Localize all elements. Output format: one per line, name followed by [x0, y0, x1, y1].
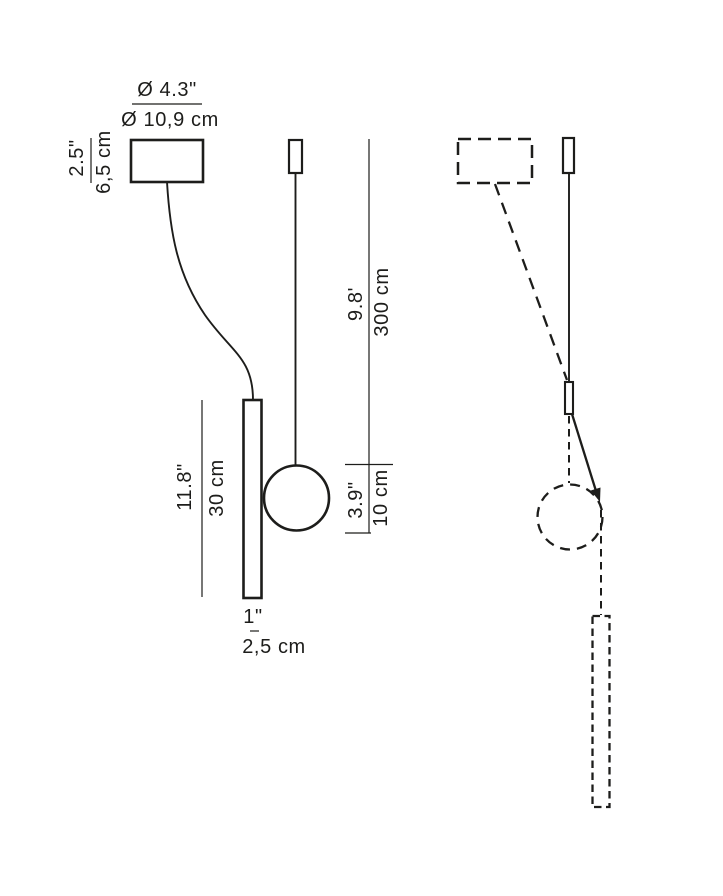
ceiling-attachment-outline-side [563, 138, 574, 173]
canopy-diameter-inches-label: Ø 4.3" [137, 80, 197, 100]
sphere-diameter-inches-label: 3.9" [346, 481, 366, 518]
tube-outline-dashed [593, 616, 610, 807]
front-view [131, 140, 329, 598]
sphere-diameter-cm-label: 10 cm [371, 469, 391, 526]
canopy-height-cm-label: 6,5 cm [94, 130, 114, 194]
canopy-diameter-cm-label: Ø 10,9 cm [121, 110, 219, 130]
canopy-outline-dashed [458, 139, 532, 183]
tilt-arrow-shaft [572, 414, 596, 491]
tube-length-inches-label: 11.8" [175, 463, 195, 511]
tube-length-cm-label: 30 cm [207, 459, 227, 516]
lamp-dimension-drawing: Ø 4.3" Ø 10,9 cm 2.5" 6,5 cm 11.8" 30 cm… [0, 0, 723, 896]
power-cord-dashed [495, 184, 567, 380]
ceiling-attachment-outline [289, 140, 302, 173]
side-view [458, 138, 610, 807]
canopy-height-inches-label: 2.5" [67, 139, 87, 176]
tube-diameter-cm-label: 2,5 cm [242, 637, 306, 657]
tube-outline [244, 400, 262, 598]
tube-diameter-inches-label: 1" [243, 607, 262, 627]
sphere-outline-dashed [538, 485, 603, 550]
canopy-outline [131, 140, 203, 182]
cable-length-feet-label: 9.8' [346, 287, 366, 321]
sphere-outline [264, 466, 329, 531]
pivot-connector-outline [565, 382, 573, 414]
cable-length-cm-label: 300 cm [372, 267, 392, 336]
power-cord [167, 182, 253, 400]
